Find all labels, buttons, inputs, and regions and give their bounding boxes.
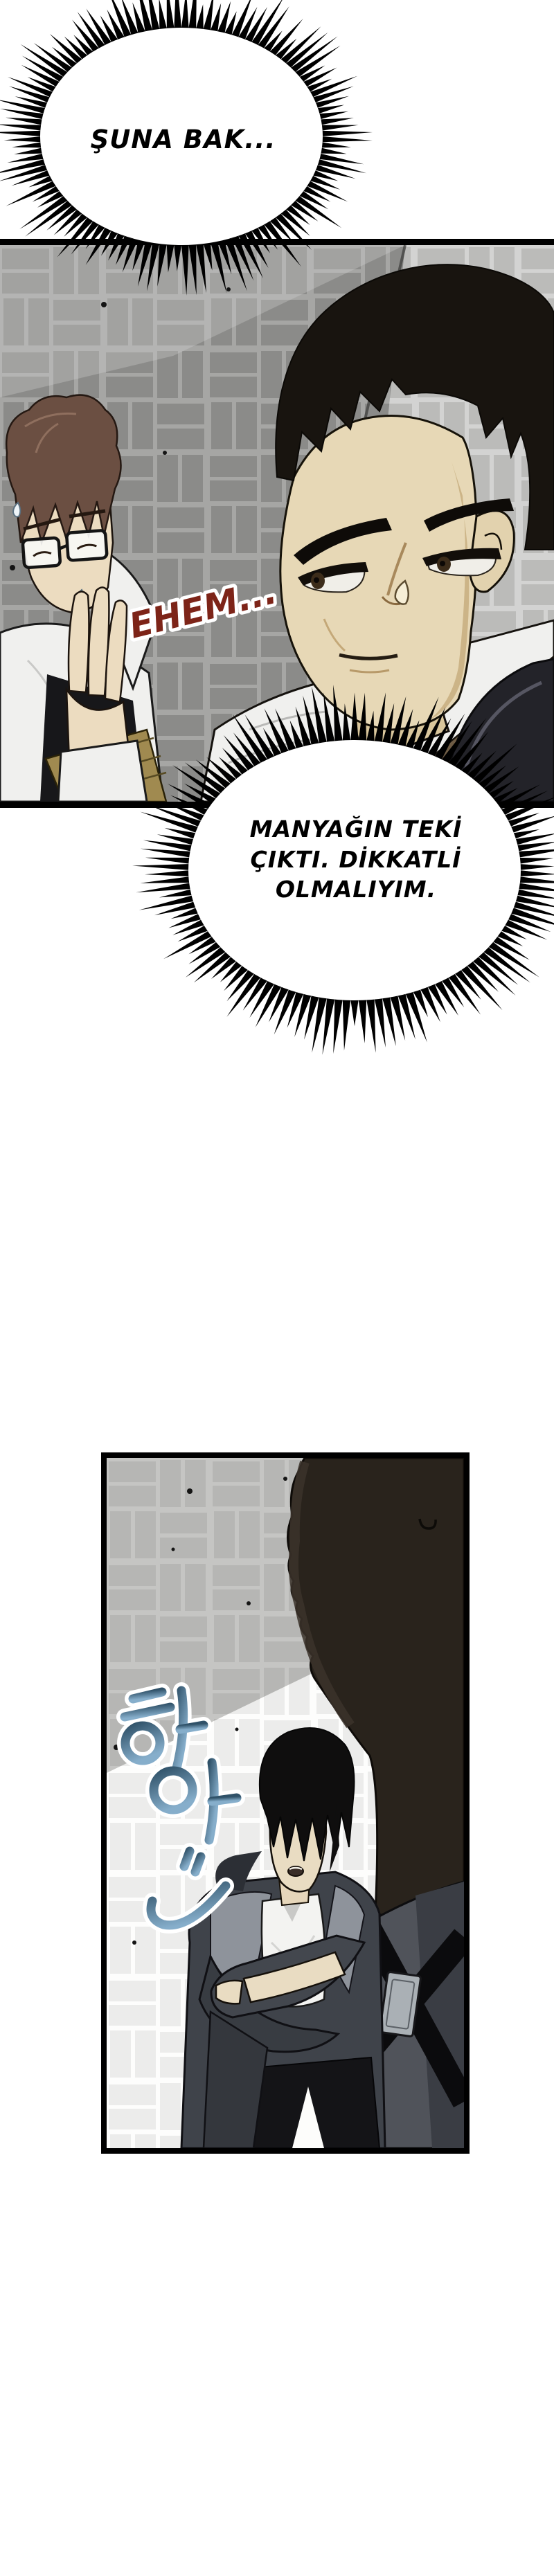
thought-line-3: OLMALIYIM. xyxy=(209,874,503,905)
panel-two-men-tiled-corridor: 하아 xyxy=(101,1452,470,2154)
panel2-art xyxy=(107,1458,464,2148)
panel1-art xyxy=(0,245,554,802)
thought-bubble-text: MANYAĞIN TEKİ ÇIKTI. DİKKATLİ OLMALIYIM. xyxy=(209,814,503,905)
glasses-man-hair xyxy=(6,395,120,543)
thought-line-2: ÇIKTI. DİKKATLİ xyxy=(209,845,503,875)
speech-bubble-top-text: ŞUNA BAK... xyxy=(50,123,316,157)
silhouette-man-badge xyxy=(379,1972,421,2037)
webtoon-page: 하아 EHEM... ŞUNA BAK... MANYAĞIN TEKİ ÇIK… xyxy=(0,0,554,2576)
panel-closeup-stern-man xyxy=(0,239,554,808)
thought-line-1: MANYAĞIN TEKİ xyxy=(209,814,503,845)
sigh-sfx-text: 하아 xyxy=(107,2148,107,2149)
